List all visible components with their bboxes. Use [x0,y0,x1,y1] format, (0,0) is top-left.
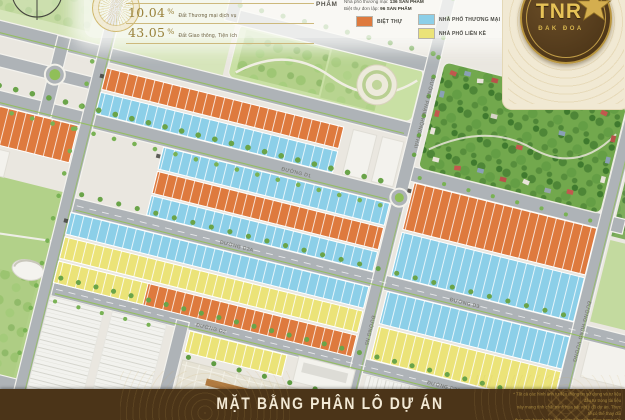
legend-item-label: NHÀ PHỐ LIỀN KỀ [439,31,486,37]
legend-note: Nhà phố thương mại: 136 SẢN PHẨM [344,0,424,5]
legend-title: PHẨM [316,1,338,8]
site-plan-poster: ĐƯỜNG D1 ĐƯỜNG D2A ĐƯỜNG D2 ĐƯỜNG D3 ĐƯỜ… [0,0,625,420]
stat-label: Đất Thương mại dịch vụ [178,13,236,19]
legend-note-prefix: Nhà phố thương mại: [344,0,390,5]
logo-location: ĐAK ĐOA [522,26,600,32]
legend-item-villa: BIỆT THỰ [356,16,402,27]
legend-note-count: 96 SẢN PHẨM [380,7,411,12]
stat-value: 10.04 [128,5,165,20]
stat-label: Đất Giao thông, Tiện ích [178,33,237,39]
legend-item-label: BIỆT THỰ [377,19,402,25]
stat-unit: % [167,27,174,36]
stat-unit: % [167,7,174,16]
legend-note: Biệt thự đơn lập: 96 SẢN PHẨM [344,7,412,12]
logo-backdrop: TNR ĐAK ĐOA [502,0,625,110]
legend-note-prefix: Biệt thự đơn lập: [344,7,380,12]
villa-swatch [356,16,373,27]
project-logo: TNR ĐAK ĐOA [520,0,612,64]
logo-star-icon [576,0,612,24]
page-title: MẶT BẰNG PHÂN LÔ DỰ ÁN [207,394,453,414]
stat-row: 10.04 % Đất Thương mại dịch vụ [126,4,314,24]
stat-row: 43.05 % Đất Giao thông, Tiện ích [126,24,314,44]
legend-item-shophouse: NHÀ PHỐ THƯƠNG MẠI [418,14,500,25]
disclaimer-line: * Tất cả các hình ảnh tư liệu thông tin … [513,392,621,405]
townhouse-swatch [418,28,435,39]
legend-item-townhouse: NHÀ PHỐ LIỀN KỀ [418,28,486,39]
legend-note-count: 136 SẢN PHẨM [390,0,424,5]
legend-item-label: NHÀ PHỐ THƯƠNG MẠI [439,17,500,23]
shophouse-swatch [418,14,435,25]
stat-value: 43.05 [128,25,165,40]
footer-disclaimer: * Tất cả các hình ảnh tư liệu thông tin … [513,392,621,420]
disclaimer-line: này mang tính chất minh họa sát với ý đồ… [513,405,621,418]
stats-panel: 46.91 % Đất ở 10.04 % Đất Thương mại dịc… [126,0,314,44]
compass-icon [4,0,70,36]
footer-bar: MẶT BẰNG PHÂN LÔ DỰ ÁN * Tất cả các hình… [0,389,625,420]
